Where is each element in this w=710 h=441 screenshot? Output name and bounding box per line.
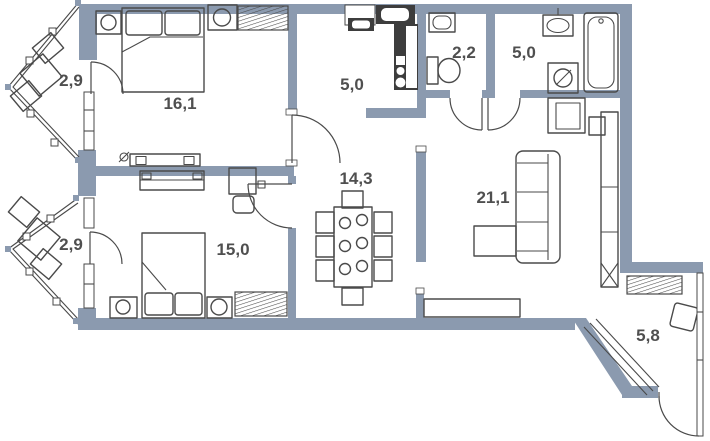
sofa-icon	[516, 151, 560, 263]
room-area-label-bedroom-2: 15,0	[216, 240, 249, 259]
chair-icon	[316, 260, 334, 281]
stove-control	[396, 56, 405, 65]
blanket-fold	[122, 37, 203, 52]
room-hall: 14,3	[316, 146, 426, 305]
room-bathroom: 5,0	[488, 8, 618, 130]
wall-hall-living-upper	[416, 152, 426, 262]
toilet-tank	[427, 57, 438, 84]
door-jamb	[416, 146, 426, 152]
chair-icon	[374, 212, 392, 233]
pillow-icon	[145, 293, 173, 315]
plate-icon	[357, 261, 368, 272]
door-jamb	[416, 288, 424, 294]
door-swing-arc	[488, 98, 520, 130]
room-area-label-living: 21,1	[476, 188, 509, 207]
door-swing-arc	[90, 232, 122, 264]
glazing-post	[75, 0, 81, 6]
wall-wc-bottom-jamb	[482, 90, 488, 98]
room-balcony-top: 2,9	[5, 0, 83, 163]
radiator-icon	[235, 292, 287, 316]
wall-wc-bottom-a	[417, 90, 450, 98]
side-table-icon	[589, 117, 605, 135]
wall-hall-living-lower	[416, 294, 424, 318]
plate-icon	[357, 238, 368, 249]
washbasin-bowl	[547, 19, 569, 33]
glazing-post	[73, 318, 79, 324]
plate-icon	[357, 215, 368, 226]
plate-icon	[340, 264, 351, 275]
window-icon	[84, 264, 94, 308]
armchair-seat	[556, 103, 580, 129]
room-area-label-balcony-bottom: 5,8	[636, 326, 660, 345]
room-area-label-balcony-middle: 2,9	[59, 235, 83, 254]
stove-burner-icon	[396, 78, 406, 88]
bay2-outer-glazing	[8, 198, 78, 324]
room-area-label-bathroom: 5,0	[512, 43, 536, 62]
radiator-icon	[238, 6, 288, 30]
coffee-table-icon	[474, 226, 516, 256]
bathtub-icon	[584, 13, 618, 92]
glazing-post	[73, 195, 79, 201]
glazing-post	[5, 246, 11, 252]
door-swing-arc	[659, 396, 699, 436]
kitchen-sink-icon	[381, 8, 409, 21]
radiator-icon	[627, 276, 682, 294]
wall-bath-bottom	[520, 90, 630, 98]
room-area-label-balcony-top: 2,9	[59, 71, 83, 90]
chair-icon	[374, 260, 392, 281]
dresser-knob	[136, 157, 146, 165]
wall-left-mid-block	[78, 150, 96, 196]
lamp-icon	[116, 300, 130, 314]
cutting-board-icon	[352, 21, 370, 29]
double-bed-icon	[122, 8, 204, 92]
wall-bedroom2-hall-a	[288, 176, 296, 184]
room-wc: 2,2	[427, 13, 482, 130]
tv-stand-icon	[424, 299, 520, 317]
stool-icon	[669, 302, 698, 331]
room-area-label-kitchen: 5,0	[340, 75, 364, 94]
bathtub-drain	[599, 19, 603, 23]
washing-machine-slash	[556, 70, 571, 85]
bay2-inner-glazing	[13, 203, 78, 319]
window-icon	[84, 198, 94, 228]
window-tick-icon	[27, 110, 34, 117]
room-bedroom-1: 16,1	[84, 5, 340, 166]
chair-icon	[374, 236, 392, 257]
chair-icon	[8, 197, 39, 228]
window-icon	[84, 92, 94, 150]
room-area-label-bedroom-1: 16,1	[163, 94, 196, 113]
pillow-icon	[175, 293, 202, 315]
basin-bowl	[433, 16, 451, 29]
plate-icon	[340, 218, 351, 229]
pillow-icon	[165, 11, 200, 35]
bathtub-inner	[588, 17, 614, 88]
stove-burner-icon	[397, 67, 405, 75]
room-area-label-wc: 2,2	[452, 43, 476, 62]
room-bedroom-2: 15,0	[84, 168, 292, 318]
dresser-knob	[184, 157, 194, 165]
room-kitchen: 5,0	[340, 5, 418, 94]
walls	[78, 4, 703, 398]
door-swing-arc	[450, 98, 482, 130]
pillow-icon	[126, 11, 162, 35]
chair-icon	[342, 288, 363, 305]
wall-balcony-top	[622, 262, 703, 273]
blanket-fold	[142, 262, 166, 290]
lamp-icon	[211, 299, 227, 315]
wardrobe-icon	[601, 112, 618, 287]
room-balcony-middle: 2,9	[5, 195, 83, 324]
chair-icon	[316, 212, 334, 233]
wall-kitchen-wc	[417, 4, 426, 118]
chair-icon	[316, 236, 334, 257]
worktop-icon	[406, 26, 417, 88]
door-swing-arc	[91, 62, 123, 94]
lamp-icon	[101, 15, 116, 30]
toilet-bowl-icon	[438, 59, 460, 83]
balcony-outer-wall	[697, 273, 703, 436]
window-tick-icon	[53, 298, 60, 305]
floor-plan-svg: 2,9 2,9 16,1	[0, 0, 710, 441]
wall-wc-bath	[486, 14, 495, 98]
room-living: 21,1	[424, 98, 618, 317]
plate-icon	[340, 241, 351, 252]
wall-bedroom1-kitchen	[288, 4, 297, 115]
wall-right	[620, 4, 632, 273]
floor-plan-page: 2,9 2,9 16,1	[0, 0, 710, 441]
window-tick-icon	[47, 215, 54, 222]
window-tick-icon	[26, 268, 33, 275]
wall-top-left-corner	[79, 4, 97, 60]
window-tick-icon	[51, 139, 58, 146]
chair-icon	[342, 191, 363, 208]
door-swing-arc	[292, 115, 340, 163]
room-area-label-hall: 14,3	[339, 169, 372, 188]
glazing-post	[5, 84, 11, 90]
door-jamb	[286, 109, 297, 115]
glazing-post	[75, 157, 81, 163]
wall-bottom	[78, 318, 575, 330]
wall-bedroom2-hall-b	[288, 228, 296, 318]
